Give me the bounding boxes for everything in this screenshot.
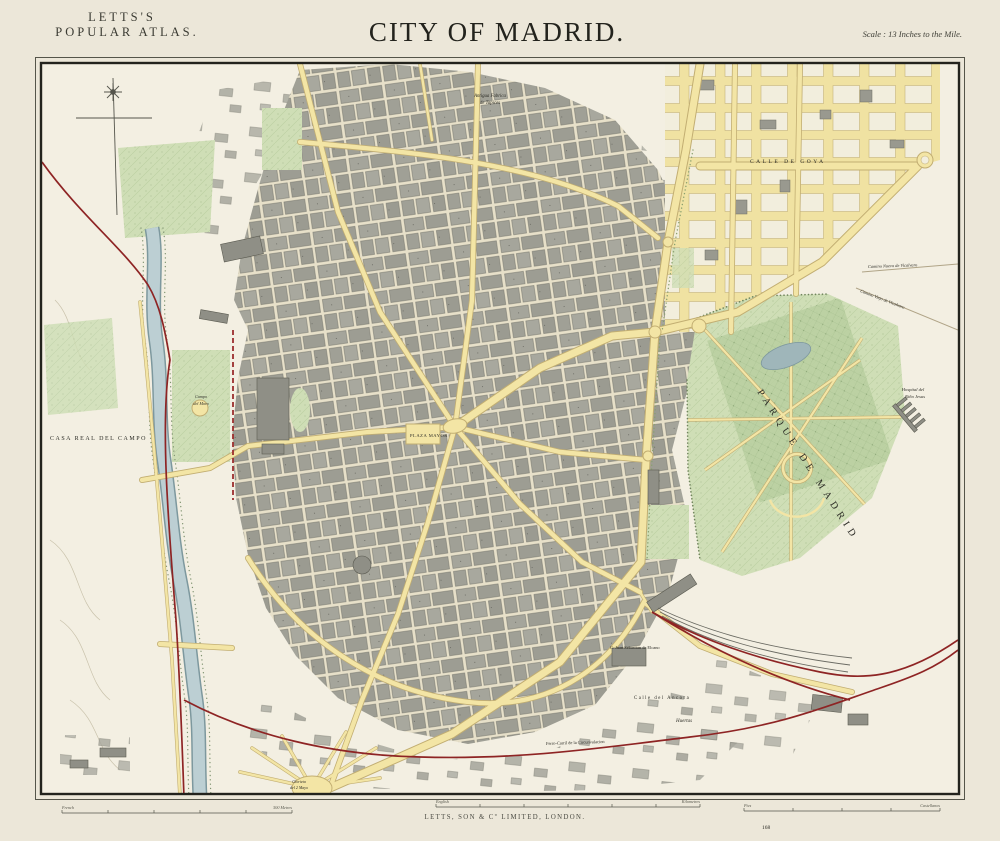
map-title: CITY OF MADRID.	[369, 17, 625, 47]
atlas-page: LETTS'S POPULAR ATLAS. CITY OF MADRID. S…	[0, 0, 1000, 841]
estacion-delicias	[100, 748, 126, 757]
plaza-de-oriente-gardens	[290, 388, 310, 432]
publisher-imprint: LETTS, SON & Cº LIMITED, LONDON.	[425, 814, 586, 821]
park-oeste	[118, 140, 215, 238]
scalebar-english-left-label: English	[435, 799, 449, 804]
map-label-hospital-nino-2: Niño Jesus	[904, 394, 925, 399]
scalebar-metres-left-label: French	[61, 805, 74, 810]
scalebar-metres-right-label: 500 Metres	[273, 805, 292, 810]
scale-note: Scale : 13 Inches to the Mile.	[863, 29, 962, 39]
royal-palace	[257, 378, 289, 440]
map-label-glorieta-1: Glorieta	[292, 779, 306, 784]
scalebar-spanish-left-label: Pies	[743, 803, 752, 808]
map-label-plaza-mayor: PLAZA MAYOR	[410, 433, 448, 438]
map-label-calle-elcano: C. Juan Sebastian de Elcano	[610, 645, 660, 650]
map-label-hospital-nino-1: Hospital del	[901, 387, 925, 392]
recoletos-garden	[672, 248, 694, 288]
map-label-campo-del-moro-2: del Moro	[193, 401, 208, 406]
map-label-fabrica-tapices-2: de Tapices	[480, 101, 500, 106]
atlas-name-line1: LETTS'S	[88, 10, 156, 24]
scalebar-spanish-right-label: Castellanos	[920, 803, 940, 808]
museo-del-prado	[648, 470, 659, 504]
san-francisco-el-grande	[353, 556, 371, 574]
map-label-campo-del-moro-1: Campo	[195, 394, 207, 399]
map-label-calle-del-ancora: Calle del Ancora	[634, 696, 690, 701]
atlas-name-line2: POPULAR ATLAS.	[55, 25, 198, 39]
scalebar-english-right-label: Kilometres	[681, 799, 701, 804]
jardin-botanico	[645, 505, 689, 559]
plaza-cibeles	[649, 326, 661, 338]
hospital-general	[612, 648, 646, 666]
map-label-calle-de-goya: CALLE DE GOYA	[750, 159, 826, 165]
plaza-neptuno	[643, 451, 653, 461]
map-canvas: CASA REAL DEL CAMPOPARQUE DE MADRIDPLAZA…	[42, 64, 958, 800]
casa-de-campo-green	[44, 318, 118, 415]
armeria	[262, 444, 284, 454]
plate-number: 168	[762, 825, 771, 831]
map-label-fabrica-tapices-1: Antigua Fabrica	[473, 94, 506, 99]
plaza-independencia	[692, 319, 706, 333]
map-label-huertas: Huertas	[675, 719, 692, 724]
park-chamberi	[262, 108, 302, 170]
map-label-glorieta-2: del 2 Mayo	[290, 785, 308, 790]
map-label-casa-real-del-campo: CASA REAL DEL CAMPO	[50, 436, 147, 442]
plaza-colon	[663, 237, 673, 247]
